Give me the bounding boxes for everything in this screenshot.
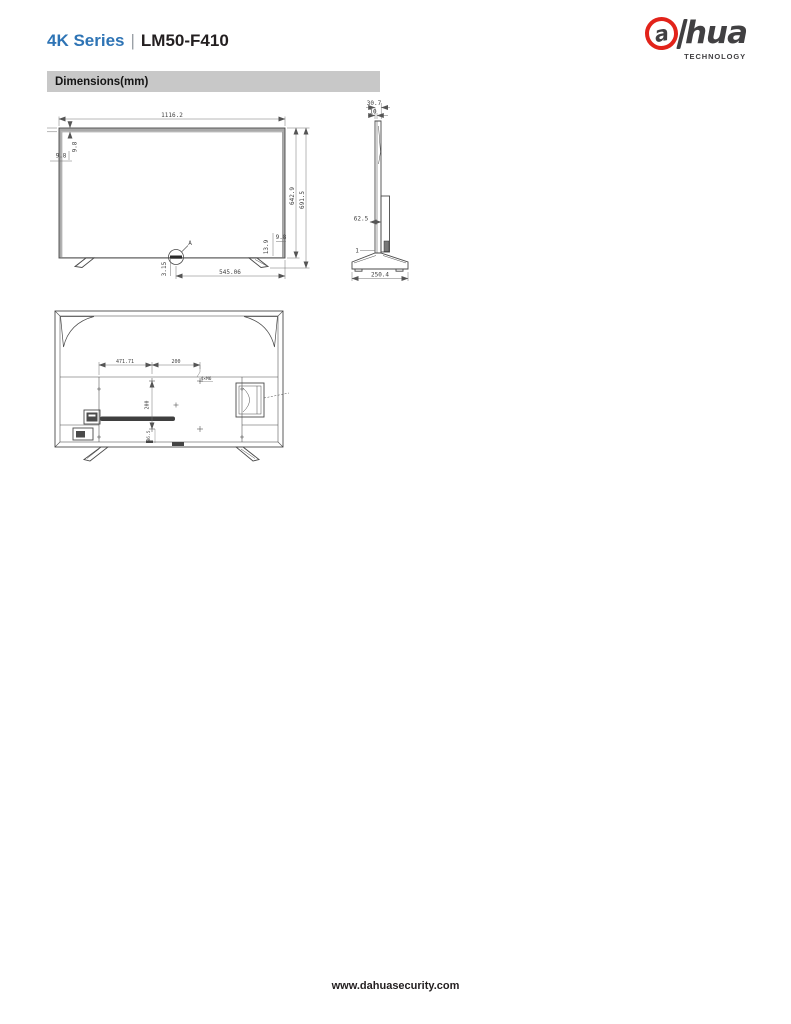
side-panel-taper: [379, 126, 381, 164]
dim-vesa-width: 200: [171, 359, 180, 365]
dim-overall-height: 691.5: [299, 191, 306, 209]
front-tv-outline: [59, 128, 285, 258]
side-view-dimensions: 30.7 10 62.5 1 250.4: [352, 100, 408, 281]
rear-right-foot: [236, 447, 259, 461]
detail-callout-leader: [182, 246, 188, 252]
detail-label: A: [188, 240, 192, 247]
rear-connector-box: [236, 383, 264, 417]
rear-corner-wedge-left: [61, 317, 95, 348]
rear-outline: [55, 311, 283, 447]
rear-connector-leader: [264, 393, 289, 398]
rear-inner-outline: [60, 316, 278, 442]
dim-stand-span: 545.06: [219, 269, 241, 276]
vesa-holes: [97, 378, 244, 439]
front-bezel-top: [59, 128, 285, 132]
front-left-foot: [75, 258, 94, 268]
side-rear-detail: [384, 241, 389, 252]
dim-detail-offset: 3.15: [161, 261, 168, 276]
datasheet-page: 4K Series|LM50-F410 a hua TECHNOLOGY Dim…: [0, 0, 791, 1024]
dim-panel-thickness: 10: [369, 109, 377, 116]
dim-vesa-height: 200: [145, 400, 151, 409]
side-stand-foot-right: [396, 269, 403, 271]
rear-view-dimensions: 471.71 200 4×M6 200 86.5: [97, 359, 244, 443]
rear-corner-wedge-right: [244, 317, 278, 348]
dim-overall-width: 1116.2: [161, 112, 183, 119]
dim-gap: 1: [355, 248, 359, 255]
front-screen-outline: [62, 132, 282, 257]
rear-bottom-nub: [172, 442, 184, 446]
footer-url: www.dahuasecurity.com: [0, 980, 791, 992]
side-panel-outline: [375, 121, 381, 253]
rear-view-drawing: [55, 311, 289, 461]
dim-rear-depth: 62.5: [354, 216, 369, 223]
dim-bottom-offset: 86.5: [146, 430, 152, 441]
dim-vesa-left-offset: 471.71: [116, 359, 134, 365]
detail-callout-feature: [170, 256, 182, 259]
front-view-drawing: [59, 128, 285, 268]
dim-bottom-side: 9.8: [276, 234, 287, 241]
dim-base-depth: 250.4: [371, 272, 389, 279]
rear-handle-bar: [100, 417, 175, 422]
side-stand-foot-left: [355, 269, 362, 271]
dim-top-depth: 30.7: [367, 100, 382, 107]
rear-left-foot: [84, 447, 108, 461]
dimension-drawings: 1116.2 9.8 9.8 642.9 691.5 9.8 13.9 3.1: [0, 0, 791, 1024]
dim-bottom-bezel: 13.9: [263, 239, 270, 254]
dim-bezel-side: 9.8: [56, 153, 67, 160]
side-view-drawing: [352, 121, 408, 271]
dim-bezel-top: 9.8: [72, 141, 79, 152]
front-right-foot: [249, 258, 268, 268]
front-view-dimensions: 1116.2 9.8 9.8 642.9 691.5 9.8 13.9 3.1: [47, 112, 310, 279]
dim-panel-height: 642.9: [289, 187, 296, 205]
